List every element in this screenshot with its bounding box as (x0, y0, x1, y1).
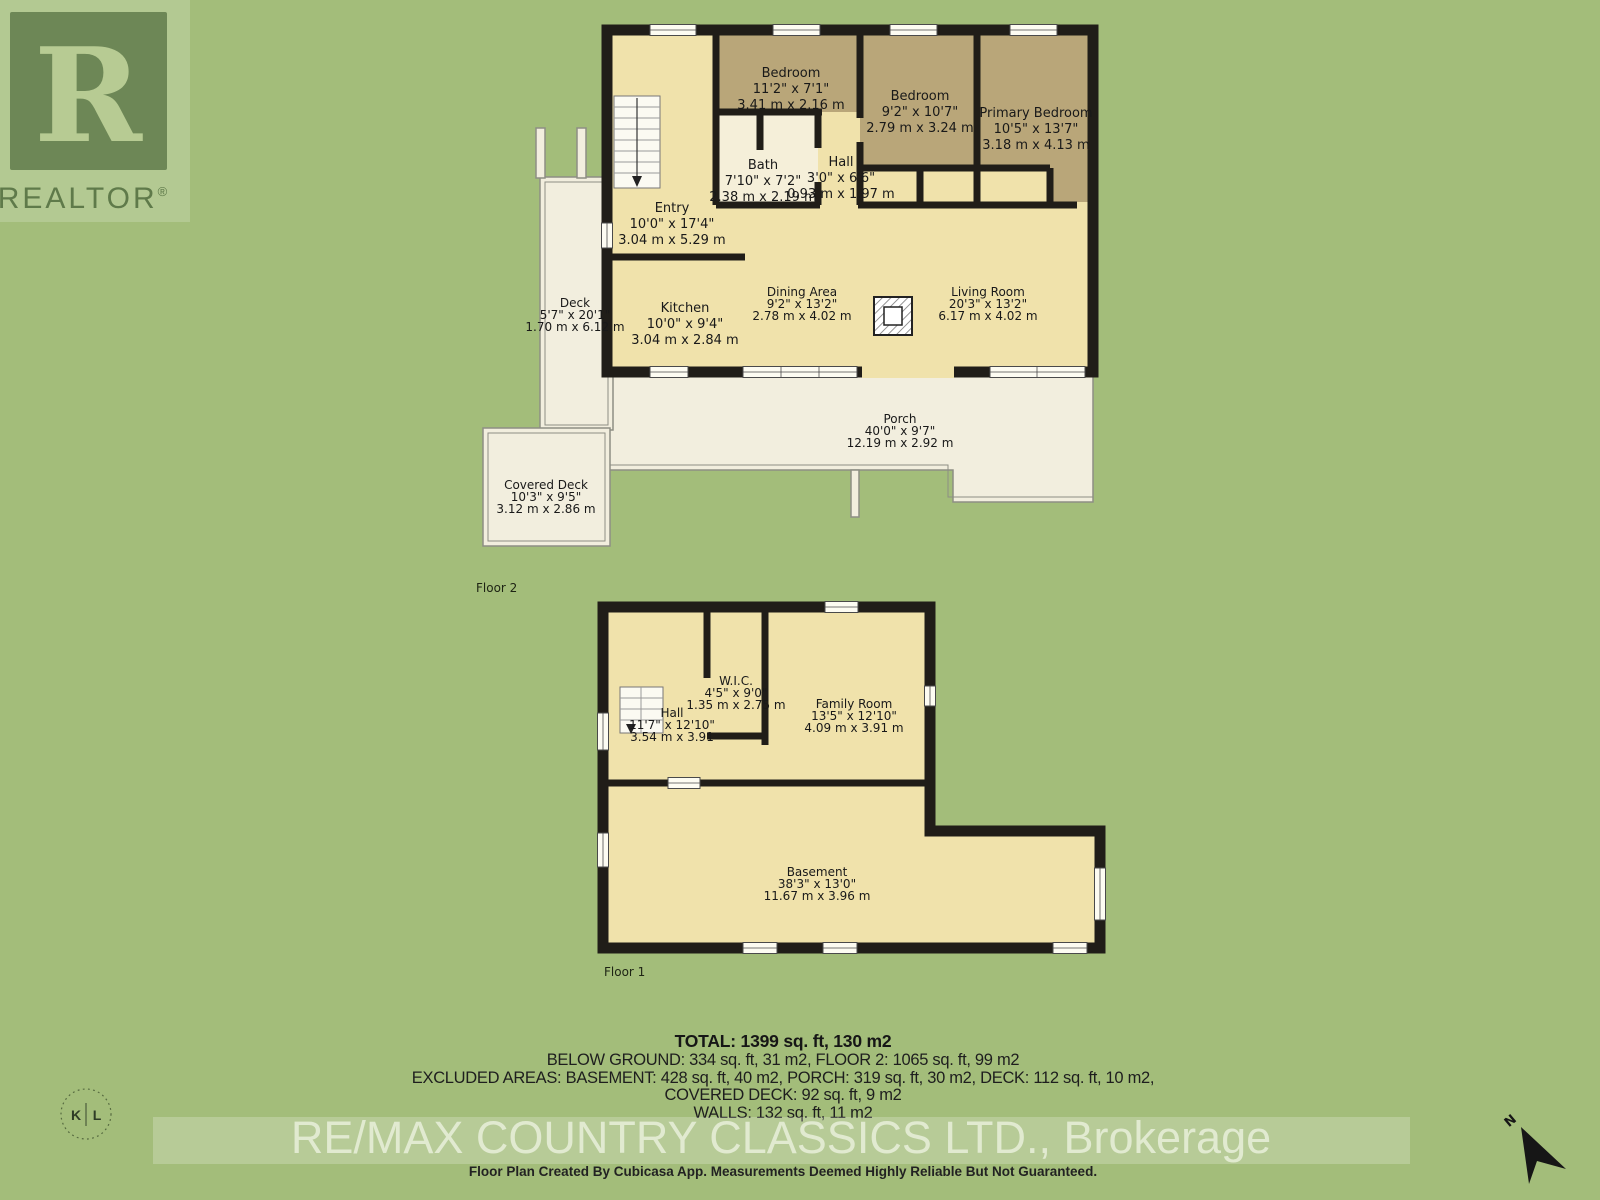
window (650, 367, 688, 378)
room-label-primary-bedroom: Primary Bedroom10'5" x 13'7"3.18 m x 4.1… (979, 106, 1092, 153)
realtor-wordmark: REALTOR® (0, 182, 170, 215)
room-label-dining-area: Dining Area9'2" x 13'2"2.78 m x 4.02 m (752, 285, 851, 323)
deck-post-left (536, 128, 545, 178)
primary-closet-floor (977, 168, 1050, 202)
room-label-family-room: Family Room13'5" x 12'10"4.09 m x 3.91 m (804, 697, 903, 735)
window (925, 686, 936, 706)
realtor-r-icon: R (34, 19, 143, 172)
cased-opening (668, 778, 700, 789)
summary-below-ground: BELOW GROUND: 334 sq. ft, 31 m2, FLOOR 2… (547, 1051, 1020, 1069)
room-label-living-room: Living Room20'3" x 13'2"6.17 m x 4.02 m (938, 285, 1037, 323)
window (773, 25, 820, 36)
floor-plan-canvas: R REALTOR® (0, 0, 1600, 1200)
porch-door-opening (862, 366, 954, 378)
window (825, 602, 858, 613)
window (743, 943, 777, 954)
window (743, 367, 857, 378)
window (1010, 25, 1057, 36)
summary-excluded-areas: EXCLUDED AREAS: BASEMENT: 428 sq. ft, 40… (412, 1069, 1154, 1087)
disclaimer-text: Floor Plan Created By Cubicasa App. Meas… (469, 1164, 1097, 1179)
floor1-label: Floor 1 (604, 965, 645, 979)
floor2-stairs (614, 96, 660, 188)
porch-step-notch (851, 470, 859, 517)
window (990, 367, 1085, 378)
window (890, 25, 937, 36)
fireplace-icon (874, 297, 912, 335)
room-label-covered-deck: Covered Deck10'3" x 9'5"3.12 m x 2.86 m (496, 478, 595, 516)
deck-post-right (577, 128, 586, 178)
window (1095, 868, 1106, 920)
window (602, 223, 613, 248)
window (823, 943, 857, 954)
summary-total: TOTAL: 1399 sq. ft, 130 m2 (675, 1031, 892, 1051)
realtor-logo: R REALTOR® (0, 0, 190, 222)
window (650, 25, 696, 36)
window (598, 713, 609, 750)
summary-covered-deck: COVERED DECK: 92 sq. ft, 9 m2 (664, 1086, 901, 1104)
brokerage-watermark: RE/MAX COUNTRY CLASSICS LTD., Brokerage (153, 1112, 1410, 1164)
window (598, 833, 609, 867)
floor2-label: Floor 2 (476, 581, 517, 595)
photographer-initial-k: K (71, 1107, 81, 1123)
brokerage-name: RE/MAX COUNTRY CLASSICS LTD., Brokerage (291, 1112, 1271, 1163)
photographer-initial-l: L (93, 1107, 102, 1123)
window (1053, 943, 1087, 954)
